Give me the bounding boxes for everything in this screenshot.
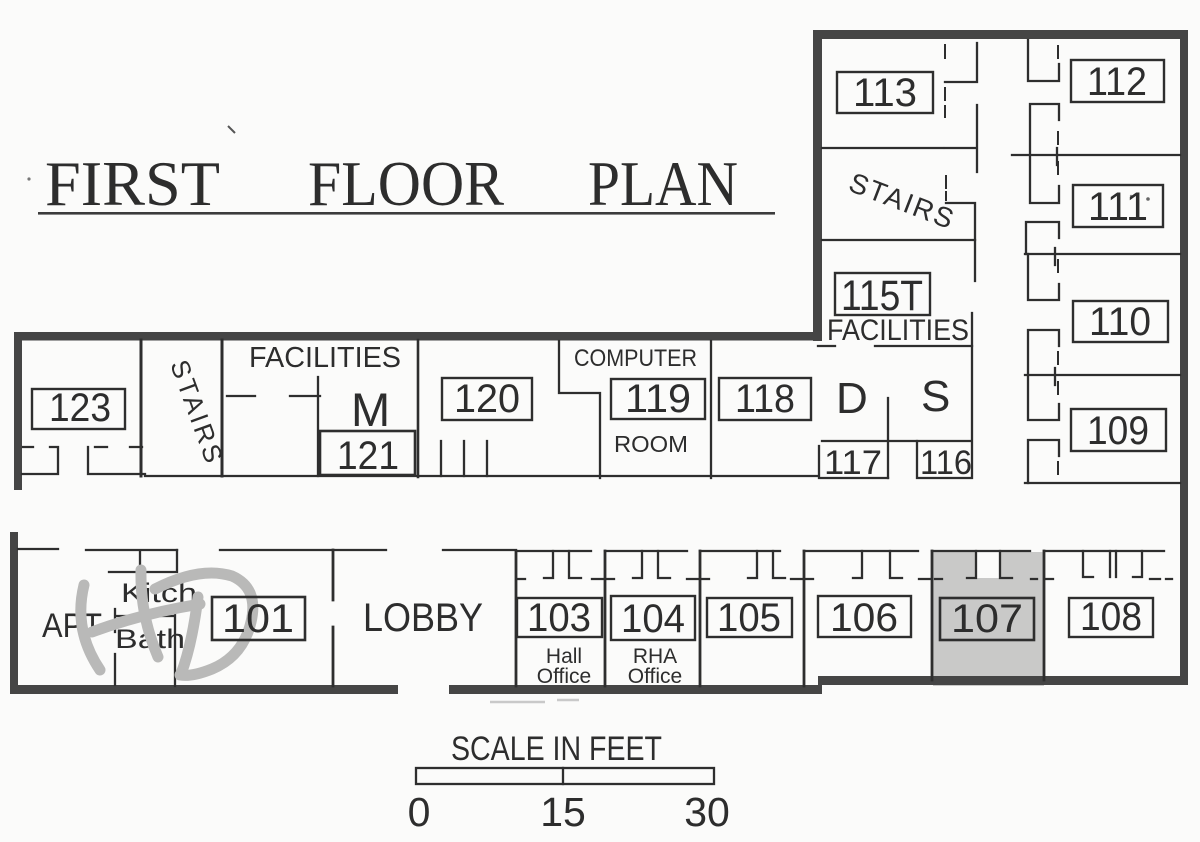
svg-text:105: 105 [717, 596, 781, 640]
svg-text:15: 15 [540, 789, 586, 835]
svg-text:PLAN: PLAN [588, 149, 738, 219]
svg-text:SCALE IN FEET: SCALE IN FEET [451, 730, 662, 768]
svg-text:30: 30 [684, 789, 730, 835]
svg-text:M: M [351, 383, 390, 436]
svg-text:FACILITIES: FACILITIES [827, 314, 969, 347]
svg-text:116: 116 [920, 444, 972, 482]
svg-text:106: 106 [830, 596, 898, 640]
svg-text:101: 101 [222, 597, 294, 641]
svg-text:FIRST: FIRST [45, 149, 220, 219]
svg-text:0: 0 [408, 789, 431, 835]
svg-text:112: 112 [1087, 60, 1147, 104]
svg-text:120: 120 [454, 377, 520, 421]
svg-text:109: 109 [1087, 409, 1149, 453]
svg-text:118: 118 [735, 377, 795, 421]
svg-text:103: 103 [527, 596, 591, 640]
svg-text:104: 104 [621, 597, 685, 641]
svg-text:COMPUTER: COMPUTER [574, 345, 697, 372]
svg-text:FLOOR: FLOOR [308, 149, 504, 219]
svg-text:119: 119 [625, 377, 691, 421]
svg-text:S: S [921, 372, 950, 421]
svg-text:ROOM: ROOM [614, 431, 688, 457]
svg-text:Office: Office [628, 665, 682, 688]
svg-text:123: 123 [49, 386, 111, 430]
svg-text:LOBBY: LOBBY [363, 596, 483, 640]
svg-text:110: 110 [1089, 300, 1151, 344]
svg-text:121: 121 [337, 434, 399, 478]
svg-text:FACILITIES: FACILITIES [249, 342, 401, 374]
svg-text:113: 113 [853, 71, 917, 115]
svg-text:108: 108 [1080, 595, 1142, 639]
svg-text:117: 117 [824, 444, 882, 482]
svg-text:107: 107 [951, 597, 1023, 641]
svg-text:D: D [836, 374, 868, 423]
svg-text:Office: Office [537, 665, 591, 688]
svg-text:111: 111 [1088, 185, 1148, 229]
svg-text:115T: 115T [841, 272, 923, 320]
